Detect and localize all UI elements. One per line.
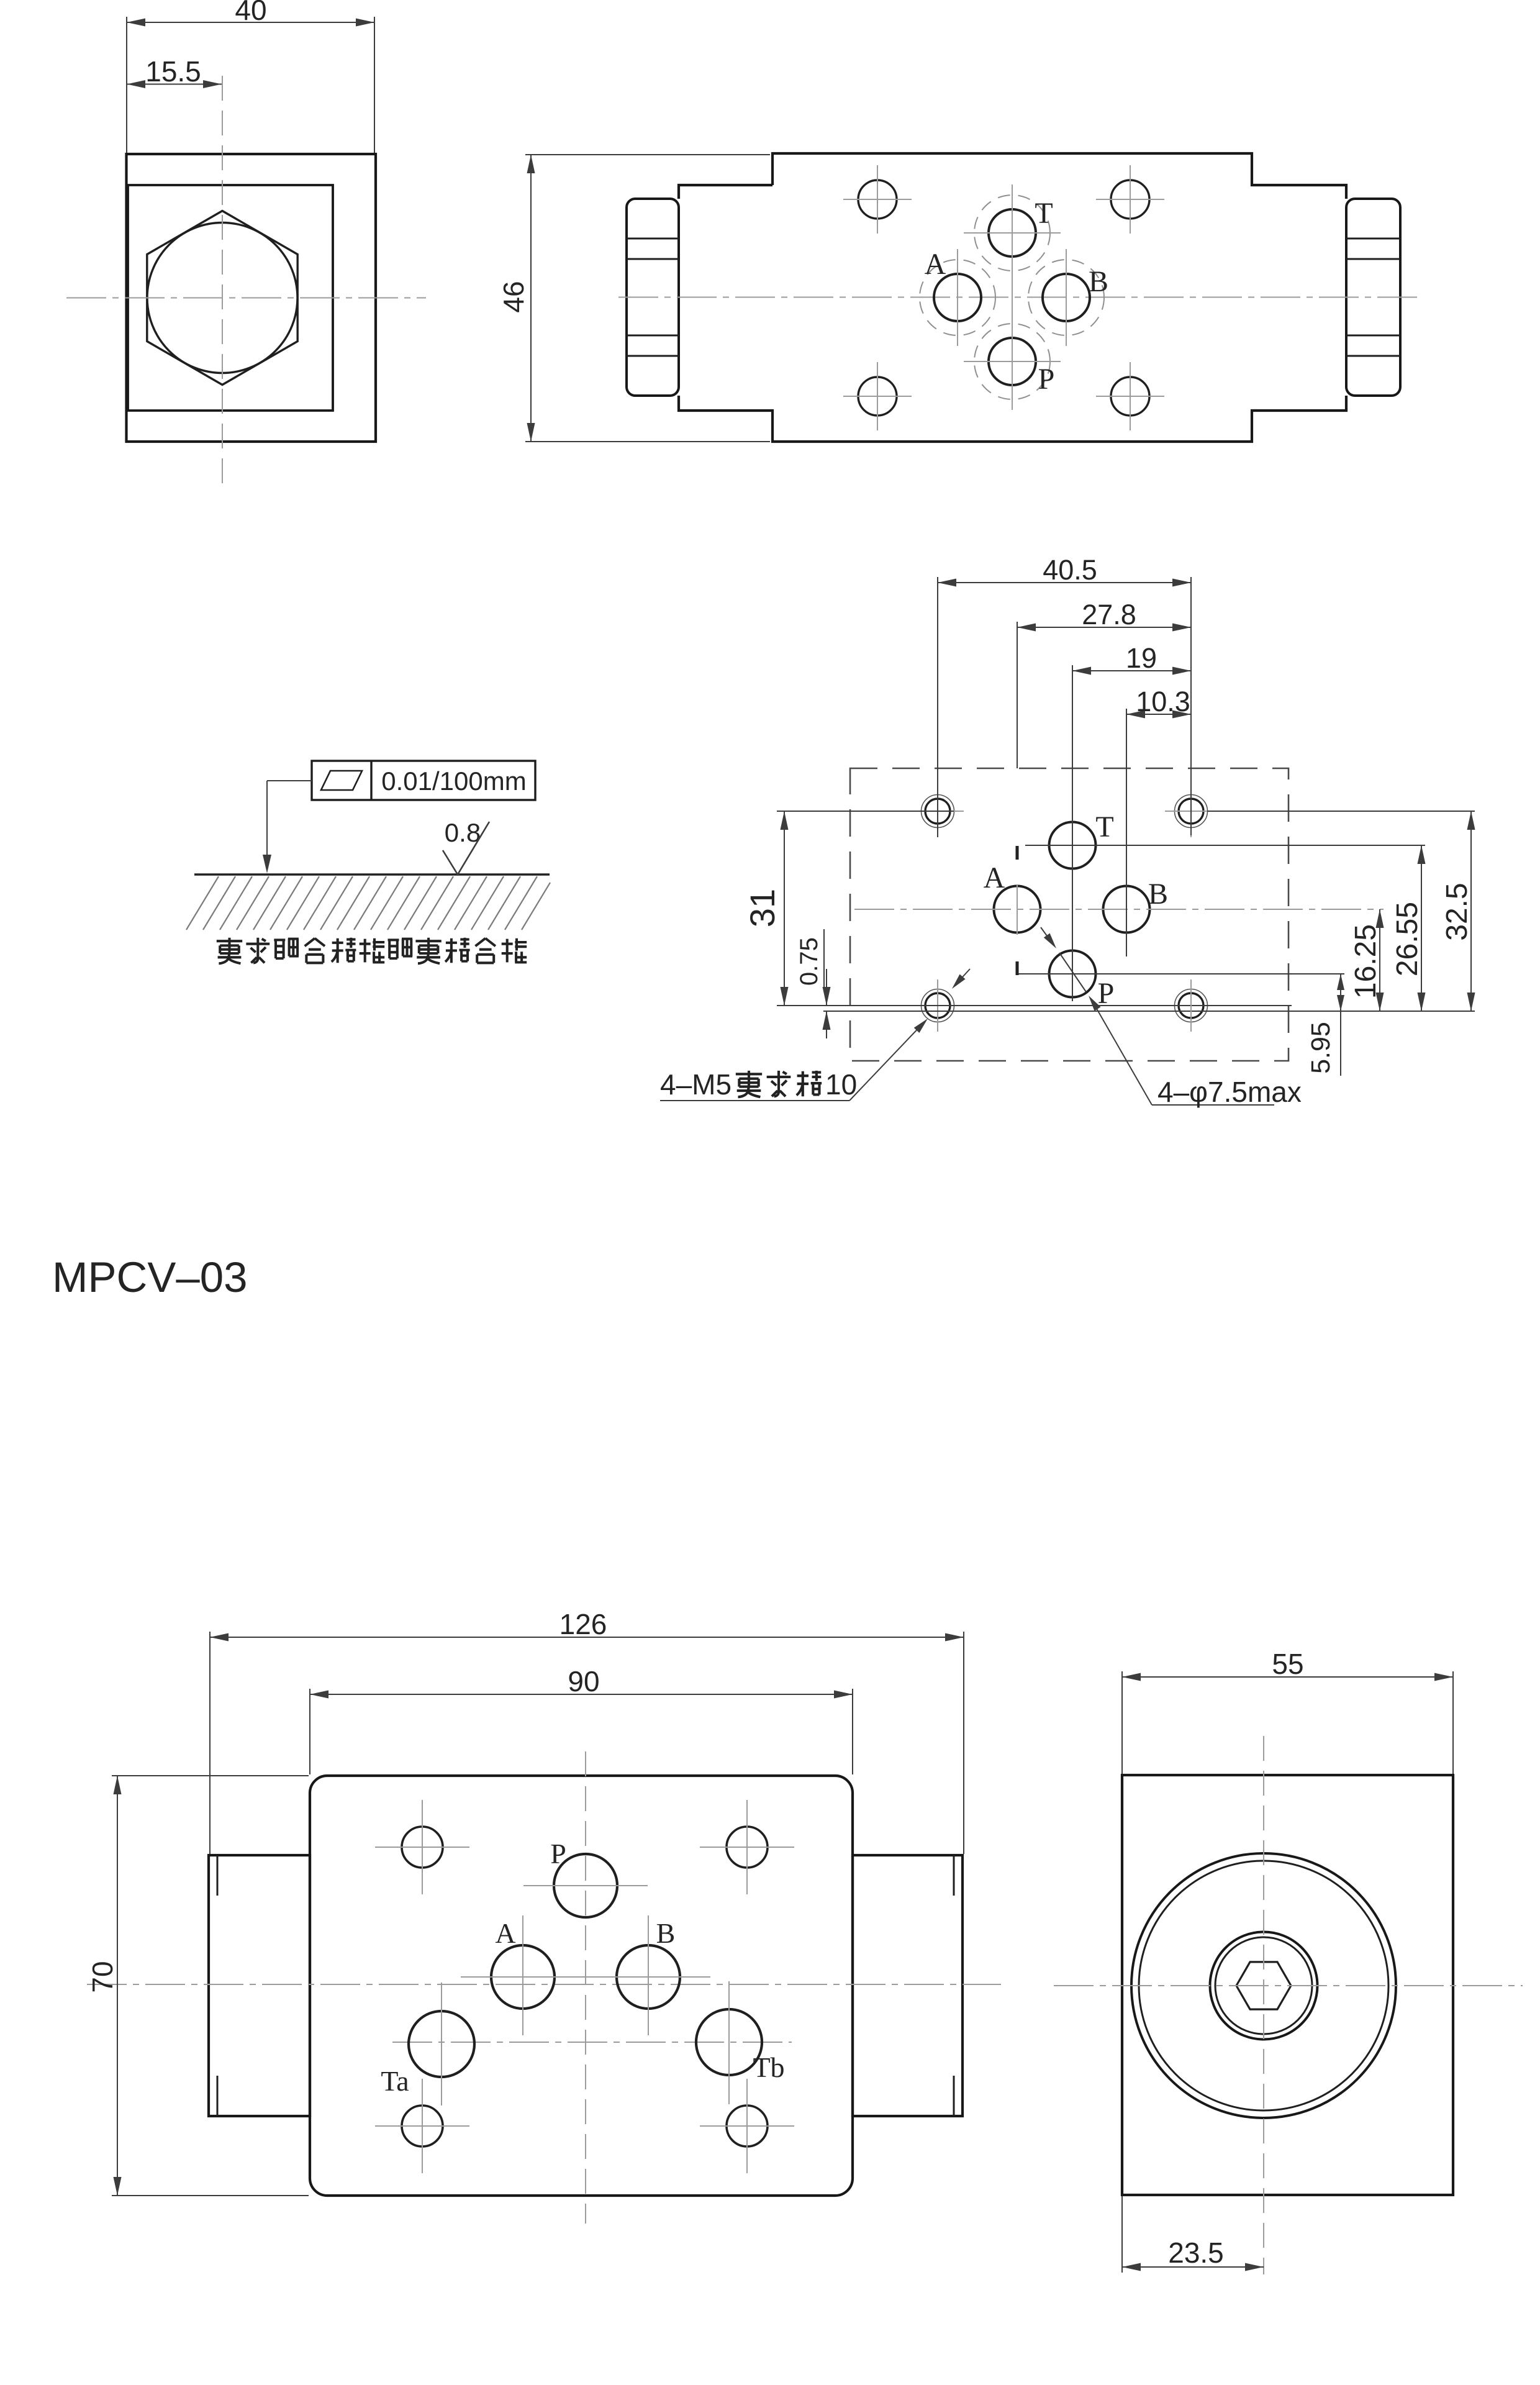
svg-text:B: B bbox=[1148, 878, 1168, 911]
svg-text:T: T bbox=[1095, 811, 1113, 843]
svg-text:90: 90 bbox=[568, 1665, 599, 1697]
svg-text:26.55: 26.55 bbox=[1391, 902, 1424, 976]
svg-text:A: A bbox=[984, 861, 1005, 894]
svg-text:0.8: 0.8 bbox=[445, 818, 481, 847]
svg-text:27.8: 27.8 bbox=[1082, 599, 1136, 630]
svg-text:P: P bbox=[550, 1838, 566, 1869]
svg-text:10.3: 10.3 bbox=[1136, 686, 1190, 717]
svg-text:40.5: 40.5 bbox=[1043, 554, 1097, 586]
svg-text:0.75: 0.75 bbox=[795, 937, 823, 986]
svg-text:126: 126 bbox=[559, 1608, 607, 1640]
svg-text:A: A bbox=[495, 1917, 515, 1949]
svg-text:40: 40 bbox=[235, 0, 266, 26]
svg-text:P: P bbox=[1038, 363, 1055, 396]
svg-text:B: B bbox=[1089, 265, 1108, 298]
svg-text:55: 55 bbox=[1272, 1648, 1303, 1680]
svg-text:31: 31 bbox=[743, 889, 782, 927]
svg-text:32.5: 32.5 bbox=[1441, 883, 1474, 940]
svg-text:19: 19 bbox=[1126, 642, 1157, 674]
svg-text:70: 70 bbox=[86, 1961, 119, 1992]
svg-text:A: A bbox=[925, 248, 946, 281]
svg-text:46: 46 bbox=[497, 281, 530, 312]
svg-text:MPCV–03: MPCV–03 bbox=[52, 1253, 247, 1301]
svg-text:4–φ7.5max: 4–φ7.5max bbox=[1157, 1076, 1302, 1108]
svg-text:23.5: 23.5 bbox=[1168, 2237, 1224, 2269]
svg-text:15.5: 15.5 bbox=[145, 55, 201, 88]
svg-text:B: B bbox=[656, 1917, 676, 1949]
svg-text:Ta: Ta bbox=[381, 2065, 409, 2097]
svg-text:0.01/100mm: 0.01/100mm bbox=[381, 766, 526, 796]
svg-text:Tb: Tb bbox=[753, 2051, 784, 2083]
svg-text:4–M5: 4–M5 bbox=[660, 1068, 731, 1101]
svg-text:10: 10 bbox=[825, 1068, 857, 1101]
svg-text:5.95: 5.95 bbox=[1306, 1022, 1336, 1074]
svg-text:T: T bbox=[1035, 197, 1053, 230]
svg-text:16.25: 16.25 bbox=[1349, 924, 1382, 999]
